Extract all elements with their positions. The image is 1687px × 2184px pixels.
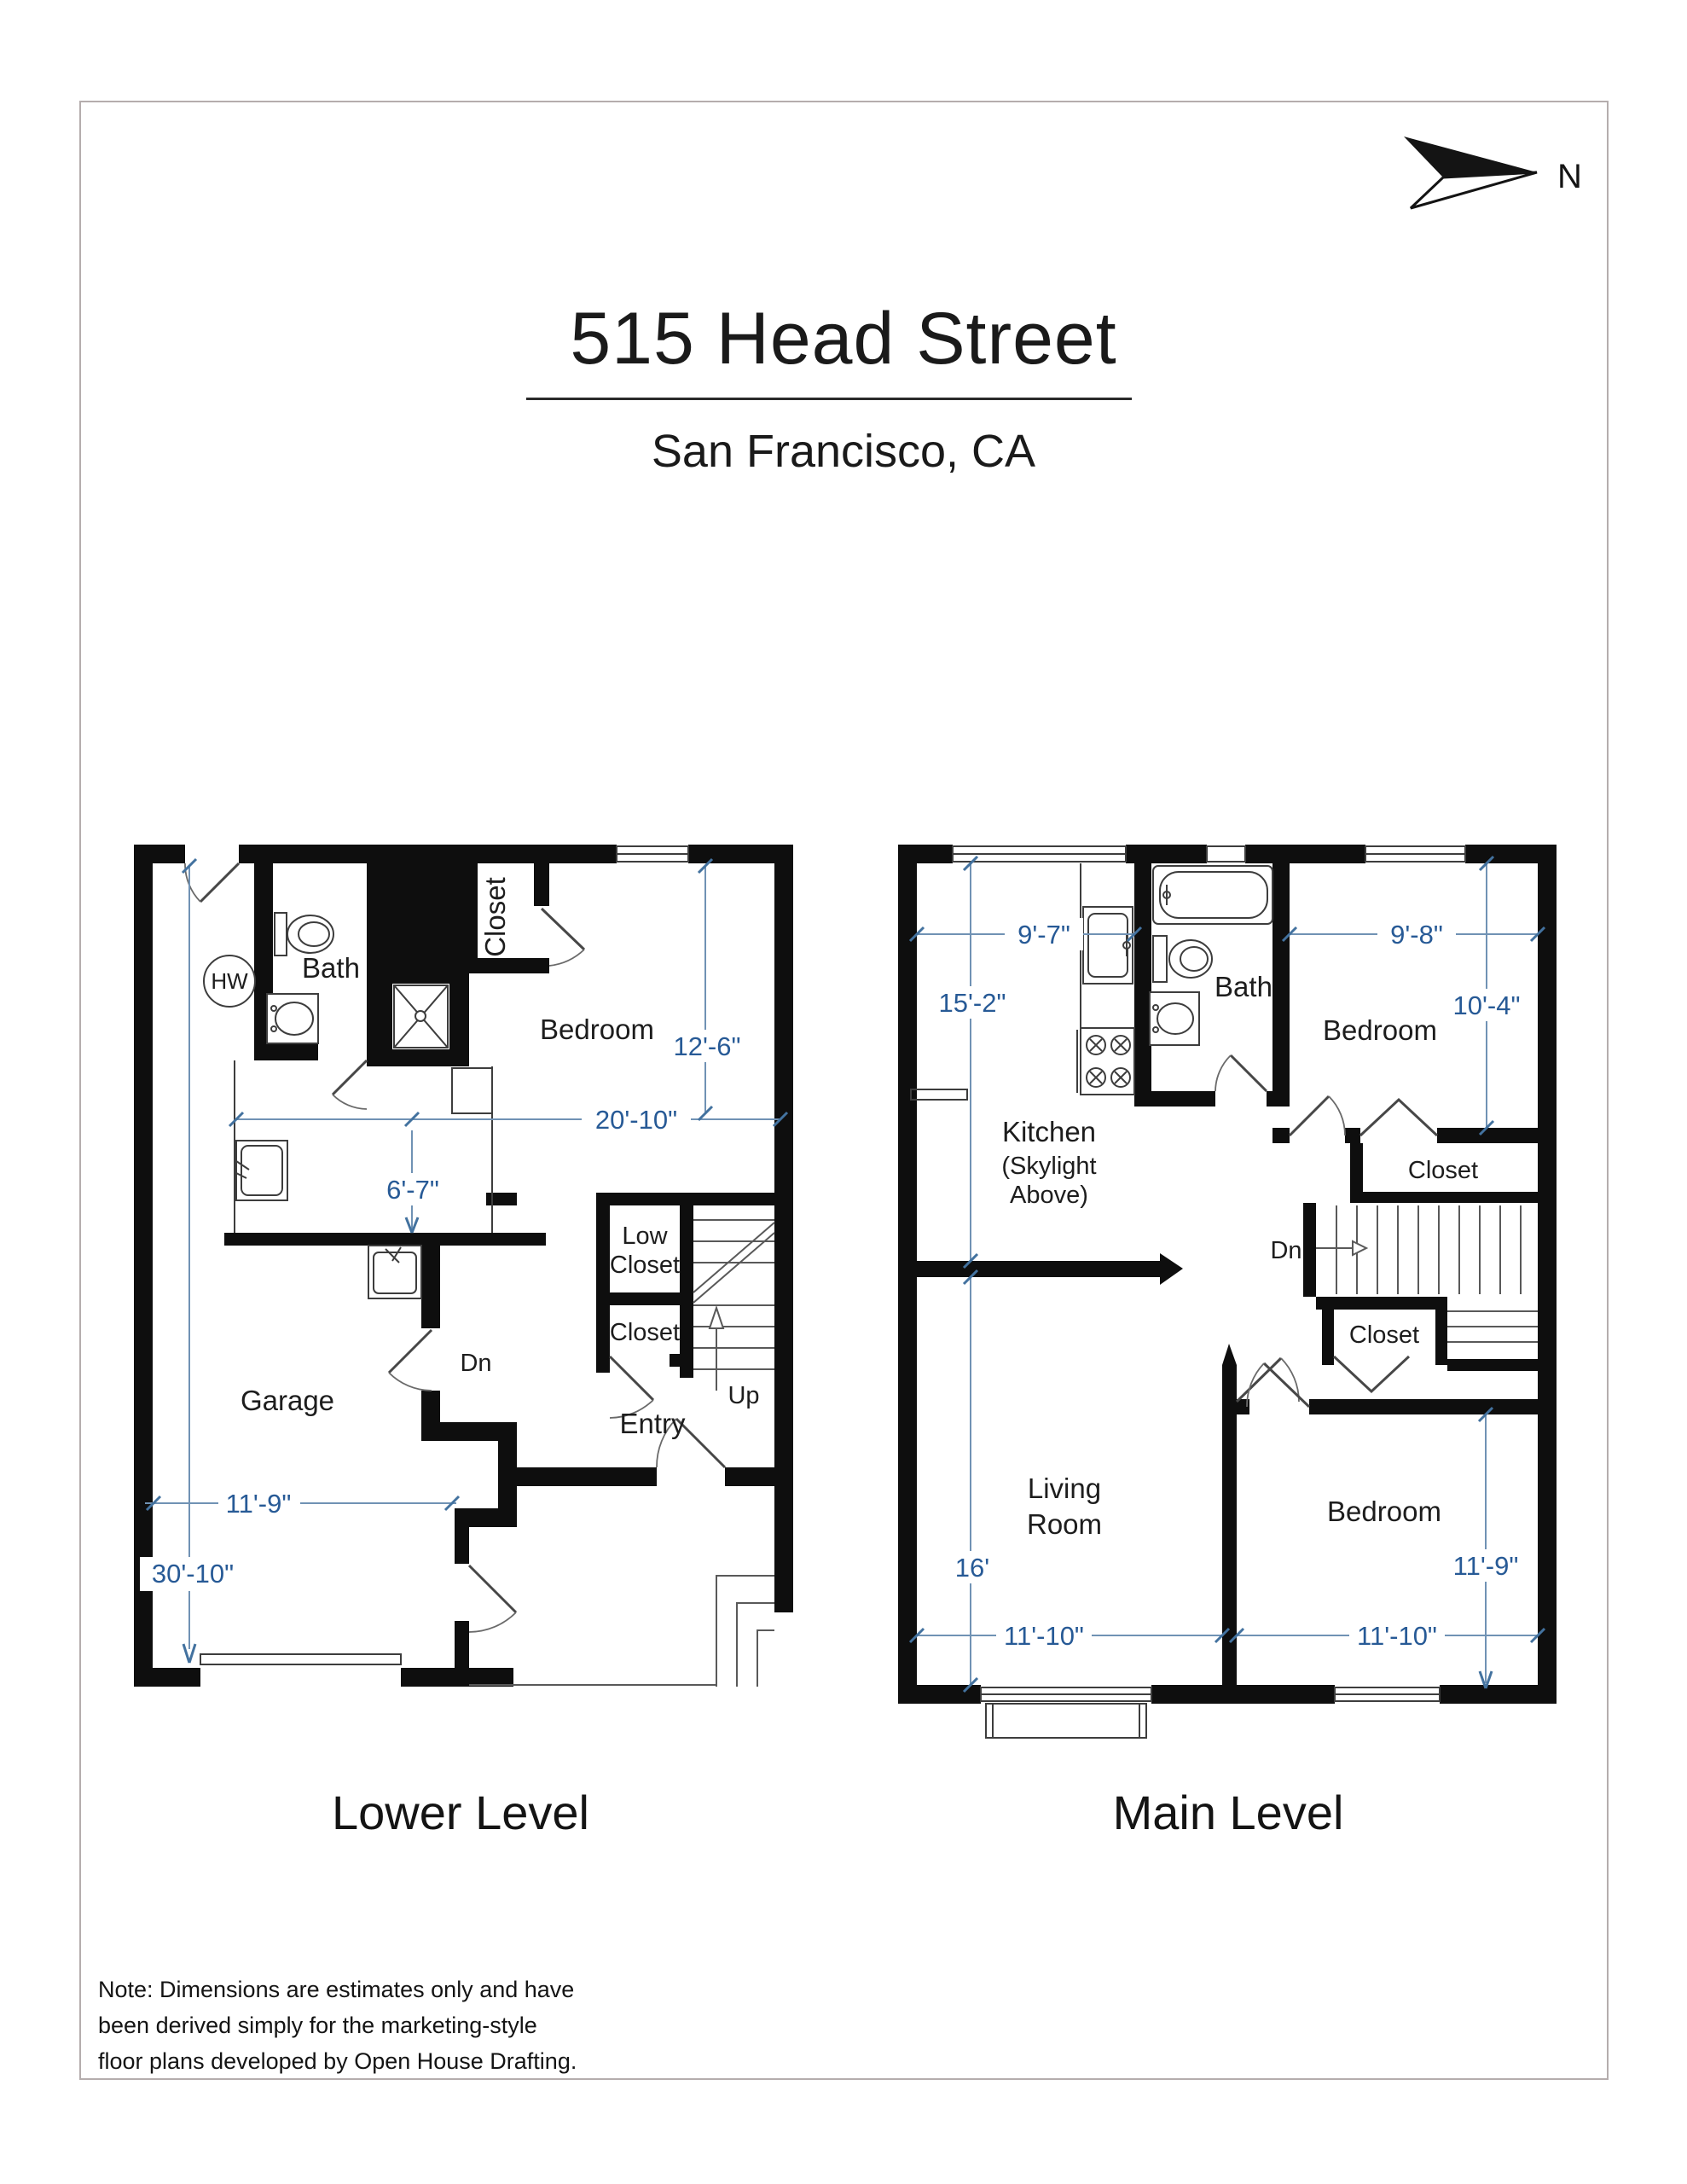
dim-bedroom-top-width: 9'-8"	[1390, 920, 1443, 950]
page-title: 515 Head Street	[0, 297, 1687, 381]
toilet-tank-icon	[275, 913, 287, 955]
room-label-kitchen: Kitchen	[1002, 1116, 1096, 1147]
title-underline	[526, 398, 1132, 400]
room-label-closet-mid-lower: Closet	[610, 1319, 680, 1346]
floor-plan-page: N 515 Head Street San Francisco, CA	[0, 0, 1687, 2184]
room-label-bedroom-lower: Bedroom	[540, 1014, 654, 1045]
room-label-closet-mid-main: Closet	[1349, 1321, 1419, 1349]
room-label-low-closet-line2: Closet	[610, 1252, 680, 1279]
dim-bedroom-top-depth: 10'-4"	[1453, 990, 1521, 1020]
note-line-2: been derived simply for the marketing-st…	[98, 2008, 644, 2044]
dim-lower-garage-width: 11'-9"	[226, 1489, 292, 1519]
room-label-living-line2: Room	[1027, 1508, 1102, 1540]
room-label-closet-top-lower: Closet	[479, 877, 511, 957]
north-label: N	[1557, 158, 1582, 195]
room-label-entry: Entry	[619, 1408, 686, 1439]
north-arrow-open-wing	[1411, 172, 1537, 208]
dim-bedroom-bottom-width: 11'-10"	[1357, 1621, 1437, 1651]
lower-shower	[392, 984, 449, 1049]
room-label-kitchen-note1: (Skylight	[1001, 1153, 1096, 1180]
north-arrow: N	[1390, 119, 1595, 230]
lower-level-caption: Lower Level	[119, 1785, 802, 1840]
label-dn-lower: Dn	[460, 1350, 491, 1377]
room-label-kitchen-note2: Above)	[1010, 1182, 1088, 1209]
room-label-garage: Garage	[241, 1385, 334, 1416]
shower-drain-icon	[415, 1011, 426, 1021]
room-label-living-line1: Living	[1028, 1472, 1101, 1504]
garage-door	[200, 1654, 401, 1664]
toilet-bowl-main-icon	[1169, 940, 1212, 978]
main-bath-fixtures	[1150, 866, 1272, 1045]
niche-box	[452, 1068, 492, 1113]
dn-arrow-icon	[1353, 1241, 1366, 1255]
main-windows	[953, 846, 1465, 1738]
lower-porch-steps	[469, 1576, 774, 1687]
laundry-sink-icon	[236, 1141, 287, 1200]
floor-plan-lower-level: 30'-10" 11'-9" 20'-10" 6'-7" 12'-6" Bath…	[119, 832, 802, 1693]
dim-kitchen-width: 9'-7"	[1017, 920, 1070, 950]
main-room-labels: Kitchen (Skylight Above) Bath Bedroom Cl…	[1001, 971, 1478, 1540]
label-dn-main: Dn	[1270, 1237, 1301, 1264]
up-arrow-icon	[710, 1308, 723, 1328]
floor-plan-main-level: 9'-7" 15'-2" 9'-8" 10'-4" 16' 11'-10" 11…	[878, 832, 1578, 1762]
dim-lower-laundry-depth: 6'-7"	[386, 1175, 439, 1205]
north-arrow-filled-wing	[1404, 136, 1537, 177]
room-label-bath-main: Bath	[1215, 971, 1272, 1002]
bath-window	[1207, 846, 1245, 862]
main-level-caption: Main Level	[878, 1785, 1578, 1840]
note-line-3: floor plans developed by Open House Draf…	[98, 2044, 644, 2080]
lower-laundry-fixtures	[235, 1060, 492, 1298]
main-kitchen-fixtures	[911, 863, 1134, 1100]
room-label-bedroom-top: Bedroom	[1323, 1014, 1437, 1046]
room-label-bedroom-bottom: Bedroom	[1327, 1496, 1441, 1527]
toilet-tank-main-icon	[1153, 936, 1167, 982]
dim-lower-overall-depth: 30'-10"	[152, 1559, 234, 1589]
bay-window-structure	[986, 1704, 1146, 1738]
label-water-heater: HW	[211, 968, 248, 994]
note-line-1: Note: Dimensions are estimates only and …	[98, 1972, 644, 2008]
page-subtitle: San Francisco, CA	[0, 425, 1687, 478]
disclaimer-note: Note: Dimensions are estimates only and …	[98, 1972, 644, 2080]
toilet-bowl-icon	[287, 915, 333, 953]
room-label-bath-lower: Bath	[302, 952, 360, 984]
lower-stairs	[693, 1220, 774, 1391]
dim-lower-upper-width: 20'-10"	[595, 1105, 677, 1135]
dim-living-width: 11'-10"	[1004, 1621, 1084, 1651]
dim-bedroom-bottom-depth: 11'-9"	[1453, 1551, 1519, 1581]
label-up-lower: Up	[728, 1382, 759, 1409]
room-label-low-closet-line1: Low	[622, 1223, 668, 1250]
room-label-closet-top-main: Closet	[1408, 1157, 1478, 1184]
dim-kitchen-depth: 15'-2"	[939, 988, 1006, 1018]
dim-lower-bedroom-depth: 12'-6"	[674, 1031, 741, 1061]
dim-living-depth: 16'	[955, 1553, 989, 1583]
